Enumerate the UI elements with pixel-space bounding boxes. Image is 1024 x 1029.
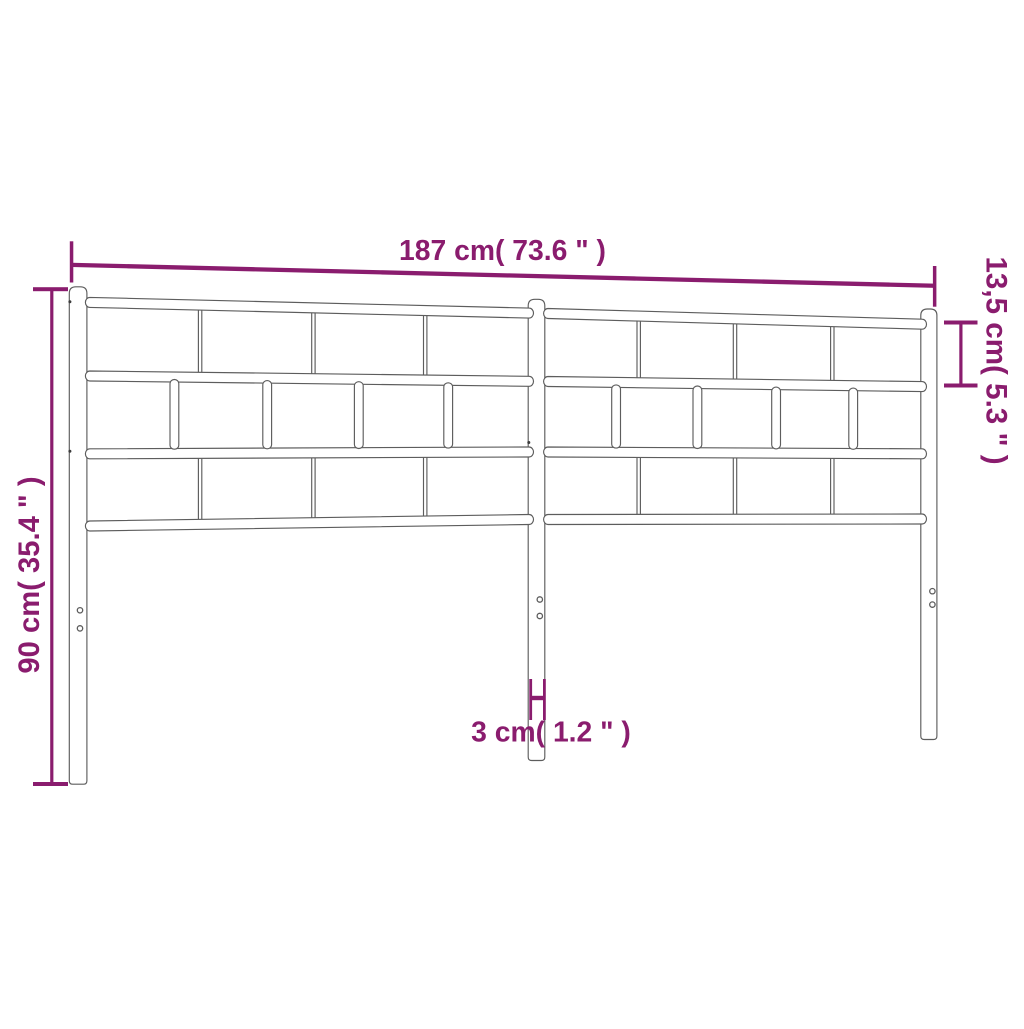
svg-text:13,5 cm( 5.3 " ): 13,5 cm( 5.3 " ) xyxy=(979,256,1012,464)
svg-text:90 cm( 35.4 " ): 90 cm( 35.4 " ) xyxy=(14,476,46,673)
svg-text:187 cm( 73.6 " ): 187 cm( 73.6 " ) xyxy=(399,234,606,266)
svg-text:3 cm( 1.2 " ): 3 cm( 1.2 " ) xyxy=(471,716,631,748)
